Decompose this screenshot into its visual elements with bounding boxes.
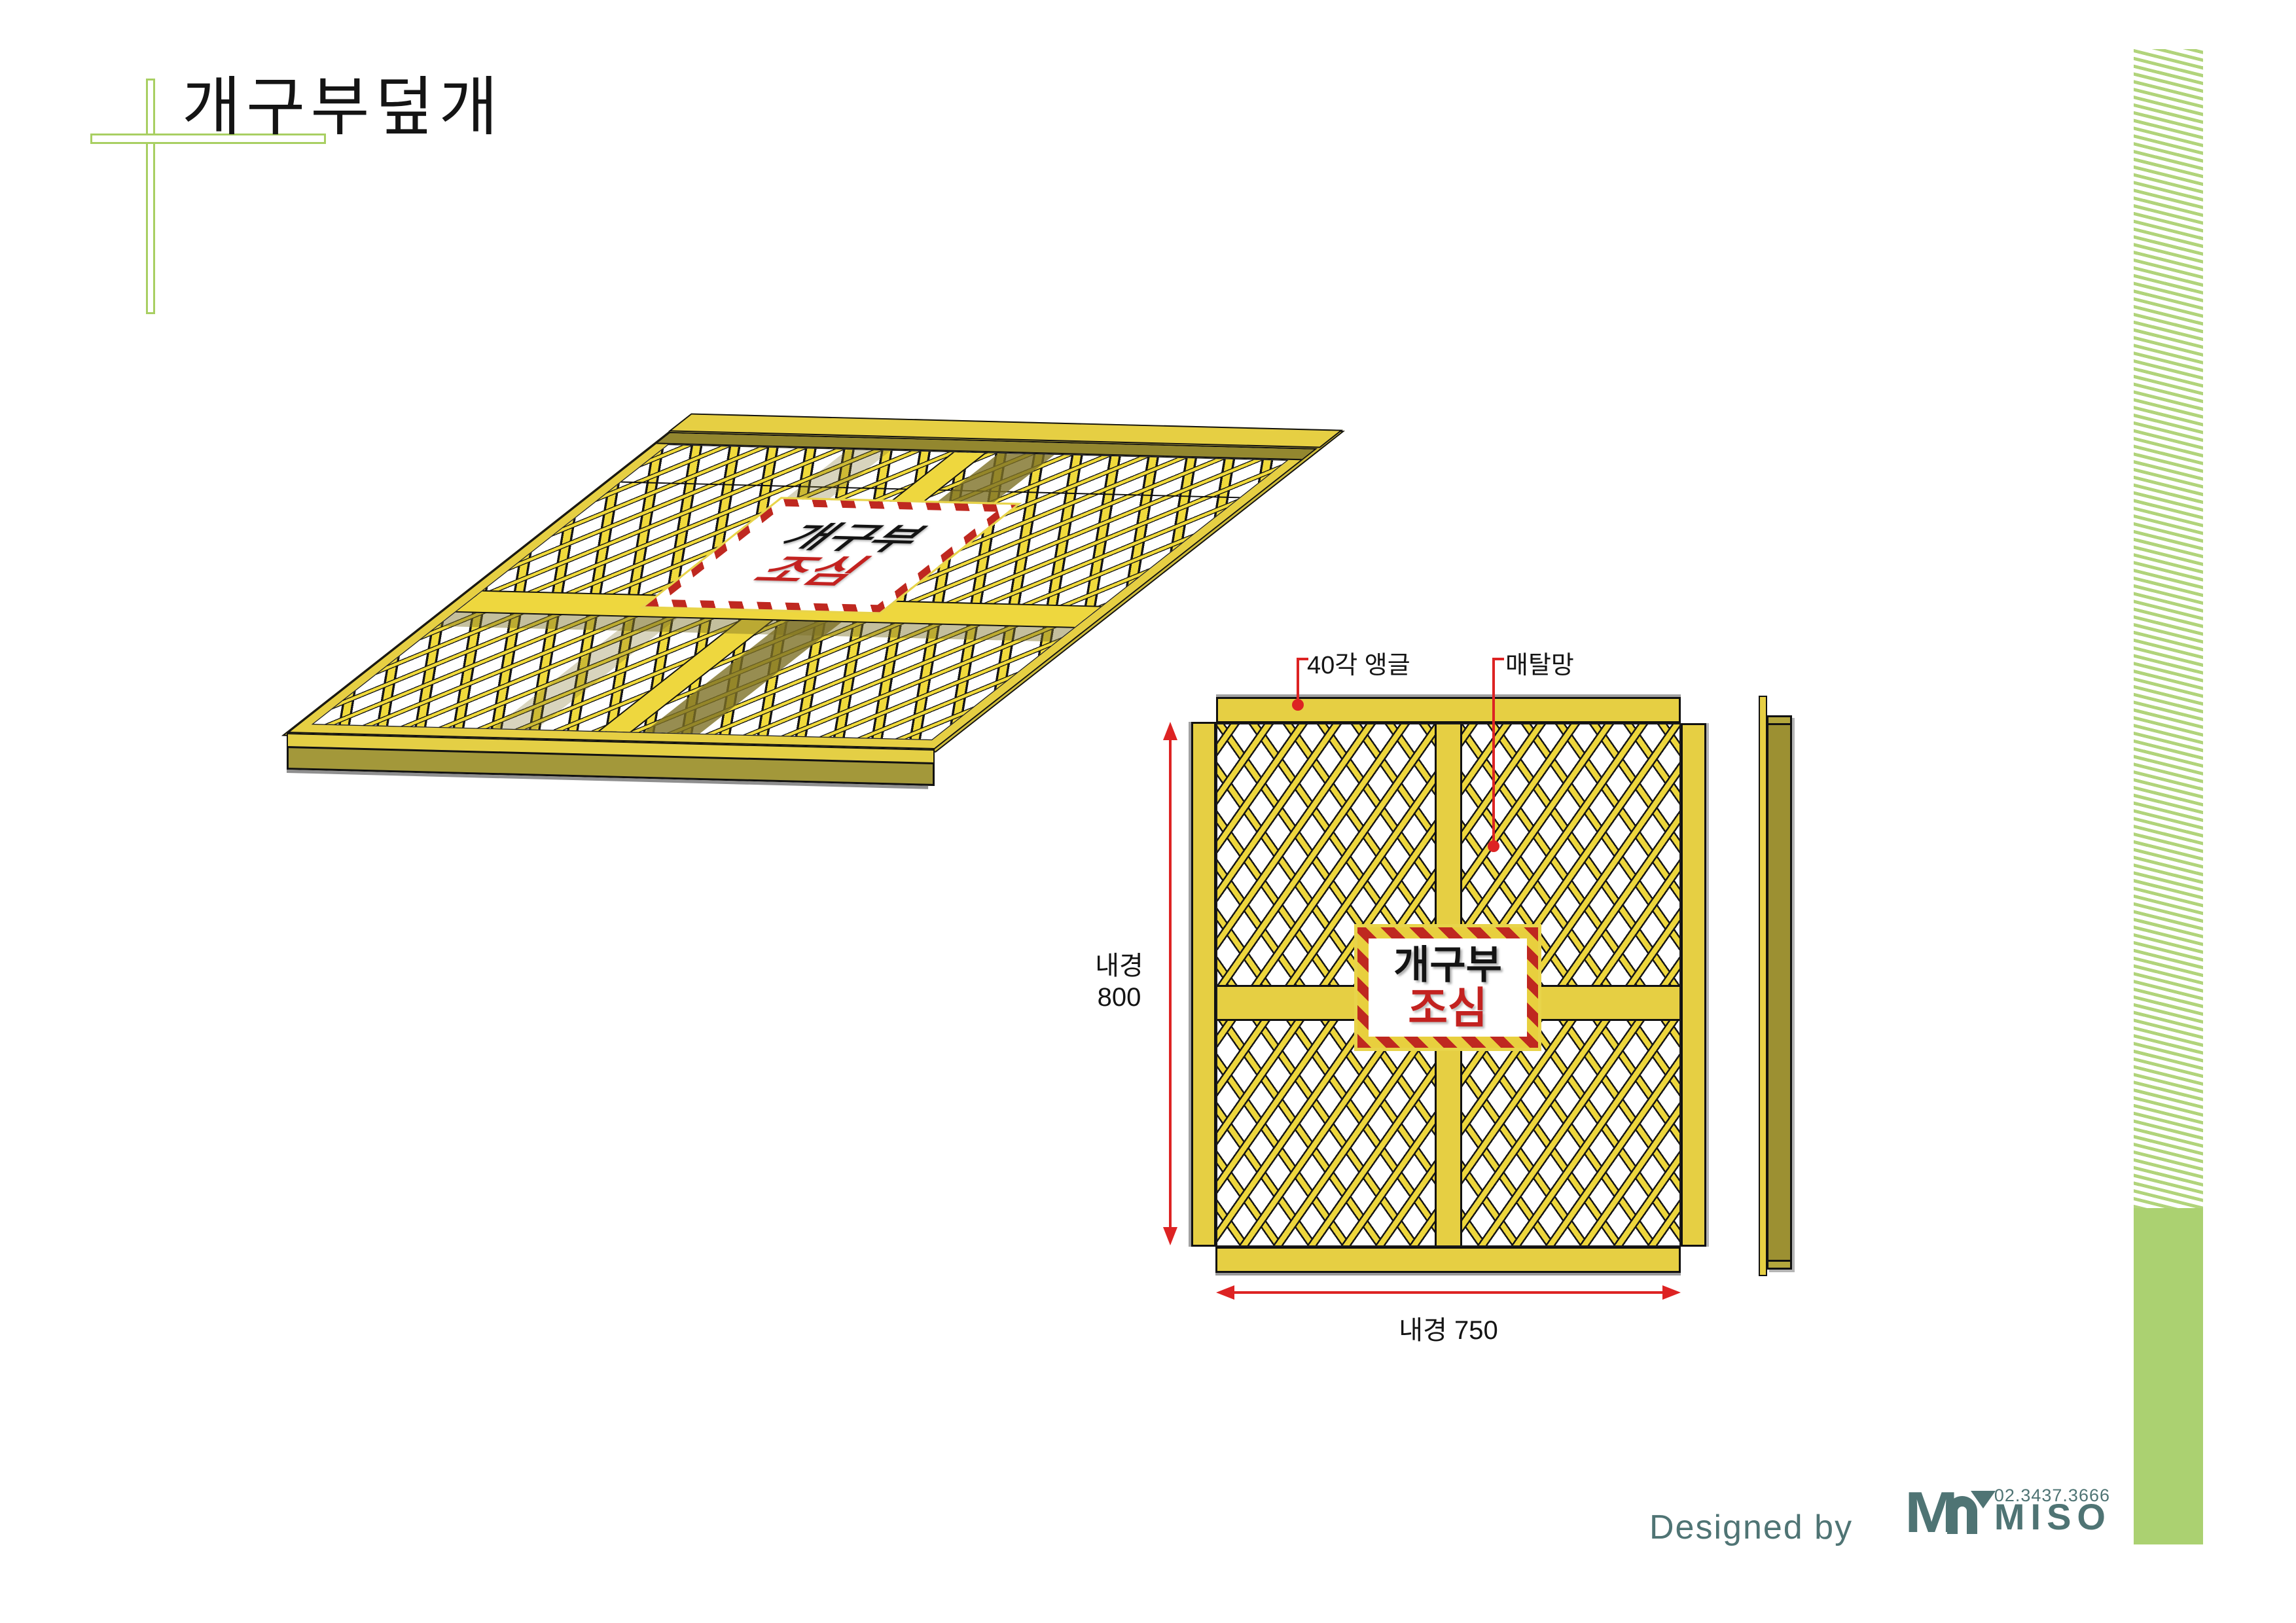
iso-mesh: 개구부 조심	[312, 444, 1289, 740]
dim-arrow-right-icon	[1662, 1285, 1681, 1300]
front-right-bar	[1681, 723, 1706, 1247]
green-accent-bar-hatched	[2134, 49, 2203, 1208]
designed-by-text: Designed by	[1649, 1508, 1853, 1547]
sign-text-bottom: 조심	[743, 553, 879, 589]
leader-angle-dot	[1292, 699, 1304, 711]
iso-mesh-panel: 개구부 조심	[287, 432, 1318, 749]
leader-mesh-dot	[1488, 840, 1499, 852]
front-top-bar	[1216, 697, 1681, 723]
dim-label-vertical-text: 내경	[1073, 950, 1165, 982]
warning-sign-front-border: 개구부 조심	[1357, 927, 1538, 1048]
warning-sign-front: 개구부 조심	[1354, 924, 1541, 1051]
sign-text-bottom: 조심	[1408, 986, 1487, 1031]
leader-mesh-line	[1492, 658, 1495, 847]
decor-cross-vertical	[146, 79, 155, 314]
label-angle: 40각 앵글	[1307, 645, 1410, 681]
dim-arrow-up-icon	[1163, 722, 1177, 740]
brand-triangle-icon	[1971, 1491, 1996, 1508]
label-mesh: 매탈망	[1505, 645, 1574, 681]
front-left-bar	[1191, 722, 1216, 1247]
warning-sign-front-face: 개구부 조심	[1369, 938, 1527, 1037]
side-angle-bottom-cap	[1768, 1260, 1790, 1268]
brand-logo: M MISO	[1905, 1491, 2111, 1534]
sign-text-top: 개구부	[1393, 944, 1502, 986]
page-canvas: 개구부덮개 개구부 조심	[0, 0, 2296, 1623]
front-bottom-bar	[1215, 1247, 1681, 1273]
dim-arrow-horizontal-line	[1225, 1291, 1672, 1294]
dim-arrow-left-icon	[1216, 1285, 1234, 1300]
sign-text-top: 개구부	[768, 522, 936, 556]
brand-footer: Designed by 02.3437.3666 M MISO	[1649, 1480, 2111, 1556]
dim-label-vertical-value: 800	[1073, 982, 1165, 1013]
dim-label-horizontal: 내경 750	[1348, 1309, 1549, 1347]
dim-arrow-down-icon	[1163, 1227, 1177, 1245]
brand-name: MISO	[1994, 1500, 2111, 1534]
side-angle-top-cap	[1768, 717, 1790, 725]
dim-label-vertical: 내경 800	[1073, 950, 1165, 1013]
warning-sign-iso-border: 개구부 조심	[645, 499, 1016, 612]
dim-arrow-vertical-line	[1169, 732, 1172, 1237]
side-angle-bar	[1767, 715, 1792, 1270]
page-title: 개구부덮개	[182, 55, 503, 148]
green-accent-bar-solid	[2134, 1208, 2203, 1544]
front-mesh: 개구부 조심	[1216, 723, 1681, 1247]
warning-sign-iso-face: 개구부 조심	[665, 507, 996, 605]
brand-m-icon: M	[1905, 1491, 1956, 1534]
warning-sign-iso: 개구부 조심	[639, 497, 1022, 615]
